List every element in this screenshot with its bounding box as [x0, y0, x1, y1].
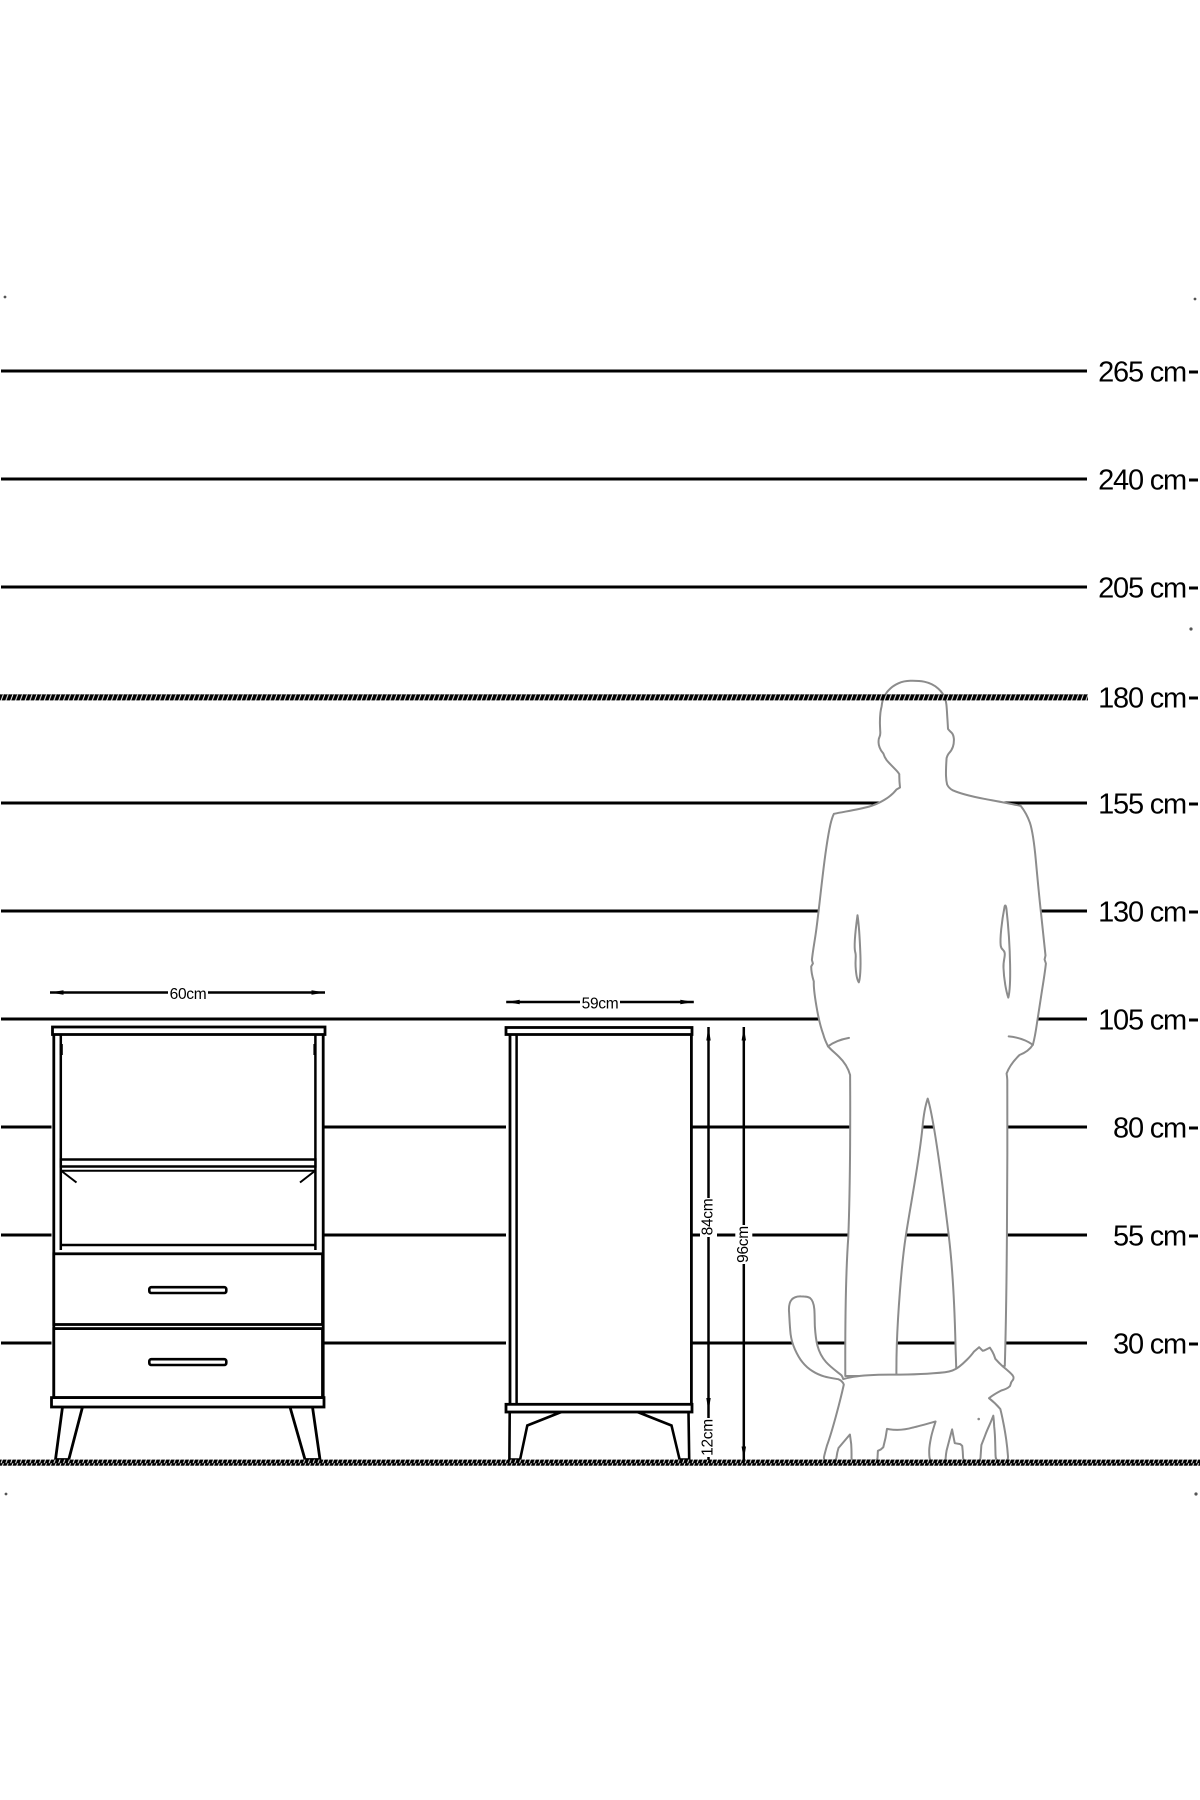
svg-text:205 cm: 205 cm	[1098, 573, 1186, 605]
svg-text:60cm: 60cm	[170, 986, 207, 1003]
svg-text:30 cm: 30 cm	[1113, 1329, 1186, 1361]
svg-text:130 cm: 130 cm	[1098, 897, 1186, 929]
svg-text:180 cm: 180 cm	[1098, 683, 1186, 715]
svg-text:12cm: 12cm	[700, 1419, 717, 1456]
svg-text:80 cm: 80 cm	[1113, 1113, 1186, 1145]
svg-text:240 cm: 240 cm	[1098, 465, 1186, 497]
svg-text:84cm: 84cm	[700, 1199, 717, 1236]
svg-text:55 cm: 55 cm	[1113, 1221, 1186, 1253]
svg-text:155 cm: 155 cm	[1098, 789, 1186, 821]
svg-text:96cm: 96cm	[735, 1226, 752, 1263]
svg-text:105 cm: 105 cm	[1098, 1005, 1186, 1037]
svg-text:265 cm: 265 cm	[1098, 357, 1186, 389]
svg-text:59cm: 59cm	[582, 996, 619, 1013]
